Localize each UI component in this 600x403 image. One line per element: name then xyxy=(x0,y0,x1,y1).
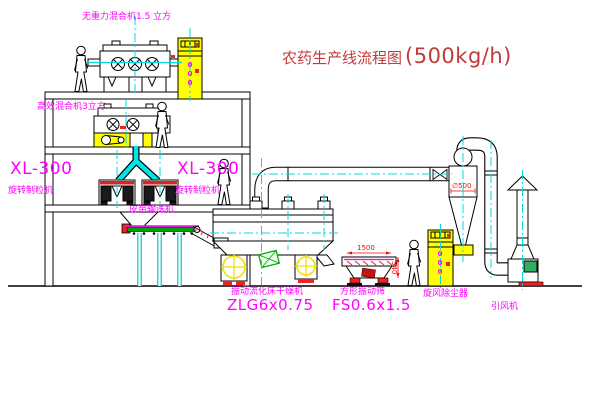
worker-figure-1 xyxy=(75,46,88,91)
belt-conveyor-label: 皮带输送机 xyxy=(129,206,174,215)
title-text: 农药生产线流程图 xyxy=(282,47,402,68)
diagram-title: 农药生产线流程图 (500kg/h) xyxy=(282,44,512,68)
flow-diagram-canvas: 无重力混合机1.5 立方 高效混合机3立方 XL-300 旋转制粒机 XL-30… xyxy=(0,0,600,403)
mixer-top-label: 无重力混合机1.5 立方 xyxy=(82,13,171,22)
fan-label: 引风机 xyxy=(491,303,518,312)
granulator-right-model: XL-300 xyxy=(177,161,239,178)
sieve-width-dimension: 1500 xyxy=(357,245,375,252)
dryer-model-label: ZLG6x0.75 xyxy=(227,298,314,313)
sieve-model-label: FS0.6x1.5 xyxy=(332,298,411,313)
granulator-left-name: 旋转制粒机 xyxy=(8,187,53,196)
elevator1-marking: 000 xyxy=(186,61,193,88)
mixer-mid-label: 高效混合机3立方 xyxy=(37,103,106,112)
granulator-right-name: 旋转制粒机 xyxy=(175,187,220,196)
induced-draft-fan xyxy=(508,259,543,286)
worker-figure-4 xyxy=(408,240,421,285)
elevator2-marking: 000 xyxy=(436,250,443,277)
conveyor-supports xyxy=(140,233,180,286)
sieve-height-dimension: 540 xyxy=(390,261,397,274)
granulator-left-model: XL-300 xyxy=(10,161,72,178)
cyclone-diameter-dimension: ∅500 xyxy=(452,183,471,190)
cyclone-label: 旋风除尘器 xyxy=(423,290,468,299)
fluid-bed-dryer xyxy=(213,197,334,285)
vibrating-sieve xyxy=(342,257,396,286)
title-capacity: (500kg/h) xyxy=(405,44,512,68)
